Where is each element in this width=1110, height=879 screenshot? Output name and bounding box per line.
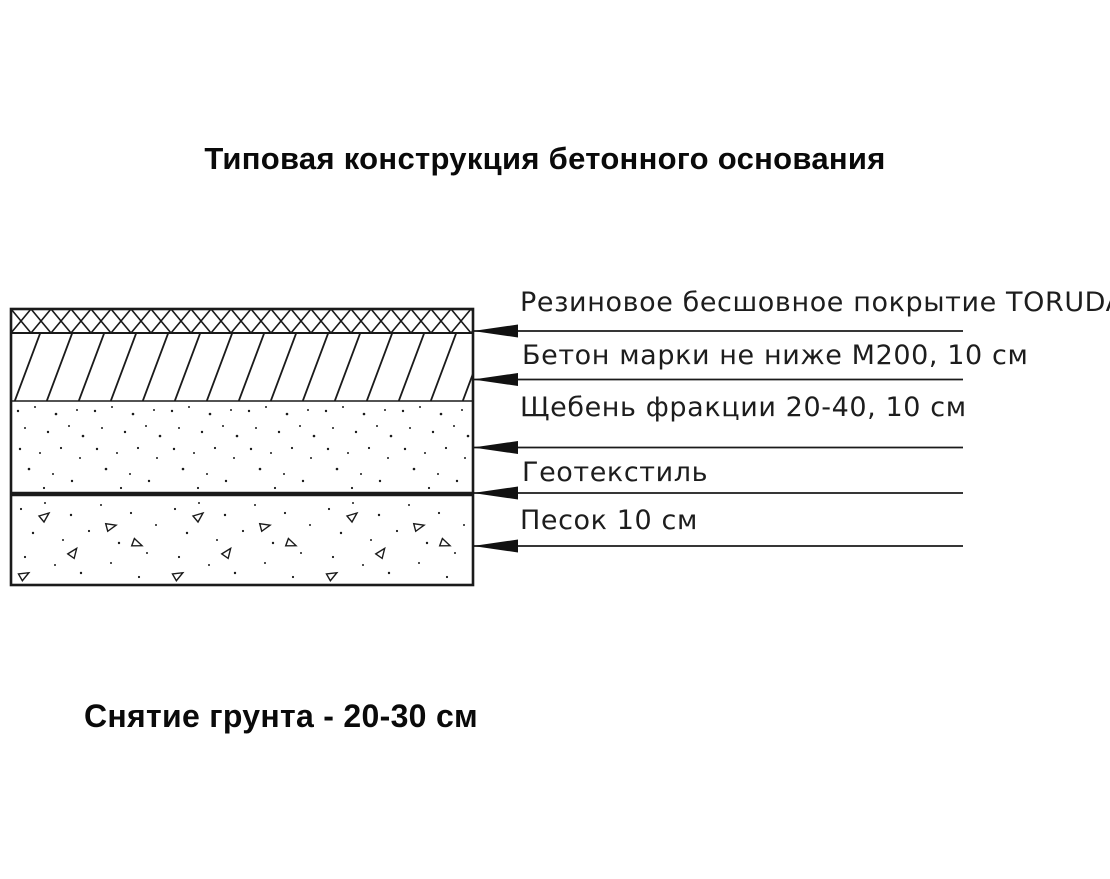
layer-concrete [11, 333, 473, 401]
layer-label-concrete: Бетон марки не ниже М200, 10 см [522, 341, 1028, 371]
layer-label-crushed-stone: Щебень фракции 20-40, 10 см [520, 393, 967, 423]
layer-label-rubber-coating: Резиновое бесшовное покрытие TORUDA [520, 288, 1110, 318]
arrowhead-geotextile-icon [473, 487, 518, 500]
arrowhead-stone-icon [473, 441, 518, 454]
arrowhead-sand-icon [473, 540, 518, 553]
leader-arrowheads [473, 325, 518, 553]
layer-label-geotextile: Геотекстиль [522, 458, 708, 488]
cross-section-drawing [0, 0, 1110, 879]
diagram-page: Типовая конструкция бетонного основания [0, 0, 1110, 879]
arrowhead-rubber-icon [473, 325, 518, 338]
arrowhead-concrete-icon [473, 373, 518, 386]
layer-crushed-stone [11, 401, 473, 493]
layer-sand [11, 495, 473, 585]
layer-label-sand: Песок 10 см [520, 506, 698, 536]
ground-removal-note: Снятие грунта - 20-30 см [84, 698, 478, 735]
layer-rubber-coating [11, 309, 473, 333]
